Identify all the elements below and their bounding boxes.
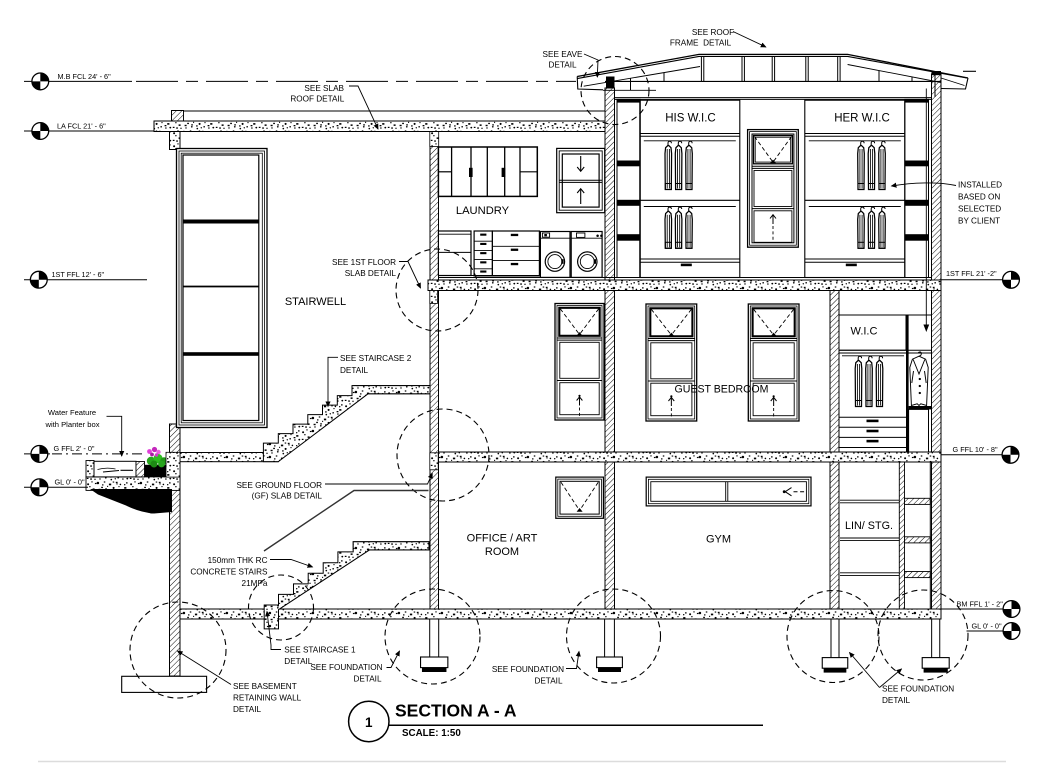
svg-text:BASED ON: BASED ON [958,193,1000,202]
svg-text:SELECTED: SELECTED [958,205,1001,214]
svg-text:SCALE: 1:50: SCALE: 1:50 [402,728,461,739]
svg-text:DETAIL: DETAIL [340,366,369,375]
svg-text:SEE GROUND FLOOR: SEE GROUND FLOOR [236,481,322,490]
svg-text:21MPa: 21MPa [242,579,268,588]
svg-text:GL 0' - 0": GL 0' - 0" [55,478,85,487]
svg-text:SEE EAVE: SEE EAVE [543,50,583,59]
svg-text:HIS W.I.C: HIS W.I.C [665,113,715,125]
svg-text:BY CLIENT: BY CLIENT [958,217,1000,226]
svg-text:GL 0' - 0": GL 0' - 0" [972,621,1002,630]
svg-text:DETAIL: DETAIL [534,676,563,685]
svg-text:1ST FFL 21' -2": 1ST FFL 21' -2" [946,269,997,278]
svg-text:SEE FOUNDATION: SEE FOUNDATION [882,684,954,693]
svg-text:SEE SLAB: SEE SLAB [304,84,344,93]
svg-text:DETAIL: DETAIL [233,705,262,714]
svg-text:1ST FFL 12' - 6": 1ST FFL 12' - 6" [52,270,105,279]
svg-text:GYM: GYM [706,534,731,546]
svg-text:DETAIL: DETAIL [882,696,911,705]
svg-text:LA FCL 21' - 6": LA FCL 21' - 6" [57,122,106,131]
svg-text:SEE BASEMENT: SEE BASEMENT [233,682,297,691]
svg-text:G FFL 2' - 0": G FFL 2' - 0" [54,444,95,453]
svg-text:RETAINING WALL: RETAINING WALL [233,693,302,702]
svg-text:SEE STAIRCASE 2: SEE STAIRCASE 2 [340,354,412,363]
svg-text:FRAME DETAIL: FRAME DETAIL [670,38,732,47]
svg-text:SLAB DETAIL: SLAB DETAIL [345,269,397,278]
svg-text:SEE FOUNDATION: SEE FOUNDATION [492,665,564,674]
svg-text:DETAIL: DETAIL [284,657,313,666]
svg-text:SEE STAIRCASE 1: SEE STAIRCASE 1 [284,646,356,655]
svg-text:ROOM: ROOM [485,546,519,558]
svg-text:SEE FOUNDATION: SEE FOUNDATION [310,663,382,672]
svg-text:LAUNDRY: LAUNDRY [456,205,510,217]
svg-text:DETAIL: DETAIL [548,61,577,70]
svg-text:DETAIL: DETAIL [353,674,382,683]
svg-text:INSTALLED: INSTALLED [958,181,1002,190]
svg-text:SEE ROOF: SEE ROOF [692,28,734,37]
svg-text:STAIRWELL: STAIRWELL [285,296,346,308]
svg-text:SEE 1ST FLOOR: SEE 1ST FLOOR [332,258,396,267]
svg-text:G FFL 10' - 8": G FFL 10' - 8" [953,445,998,454]
svg-text:BM FFL 1' - 2": BM FFL 1' - 2" [957,600,1004,609]
svg-text:SECTION A - A: SECTION A - A [395,701,517,721]
svg-text:Water Feature: Water Feature [48,408,96,417]
svg-text:CONCRETE STAIRS: CONCRETE STAIRS [190,567,268,576]
svg-text:1: 1 [365,715,373,730]
svg-text:with Planter box: with Planter box [44,420,99,429]
svg-text:W.I.C: W.I.C [851,326,878,338]
svg-text:HER W.I.C: HER W.I.C [834,113,890,125]
svg-text:M.B FCL 24' - 6": M.B FCL 24' - 6" [58,72,112,81]
svg-text:LIN/ STG.: LIN/ STG. [845,520,893,532]
svg-text:(GF) SLAB DETAIL: (GF) SLAB DETAIL [252,491,323,500]
svg-text:150mm THK RC: 150mm THK RC [208,556,268,565]
svg-text:OFFICE / ART: OFFICE / ART [467,533,538,545]
svg-text:ROOF DETAIL: ROOF DETAIL [290,95,344,104]
svg-text:GUEST BEDROOM: GUEST BEDROOM [675,383,769,395]
